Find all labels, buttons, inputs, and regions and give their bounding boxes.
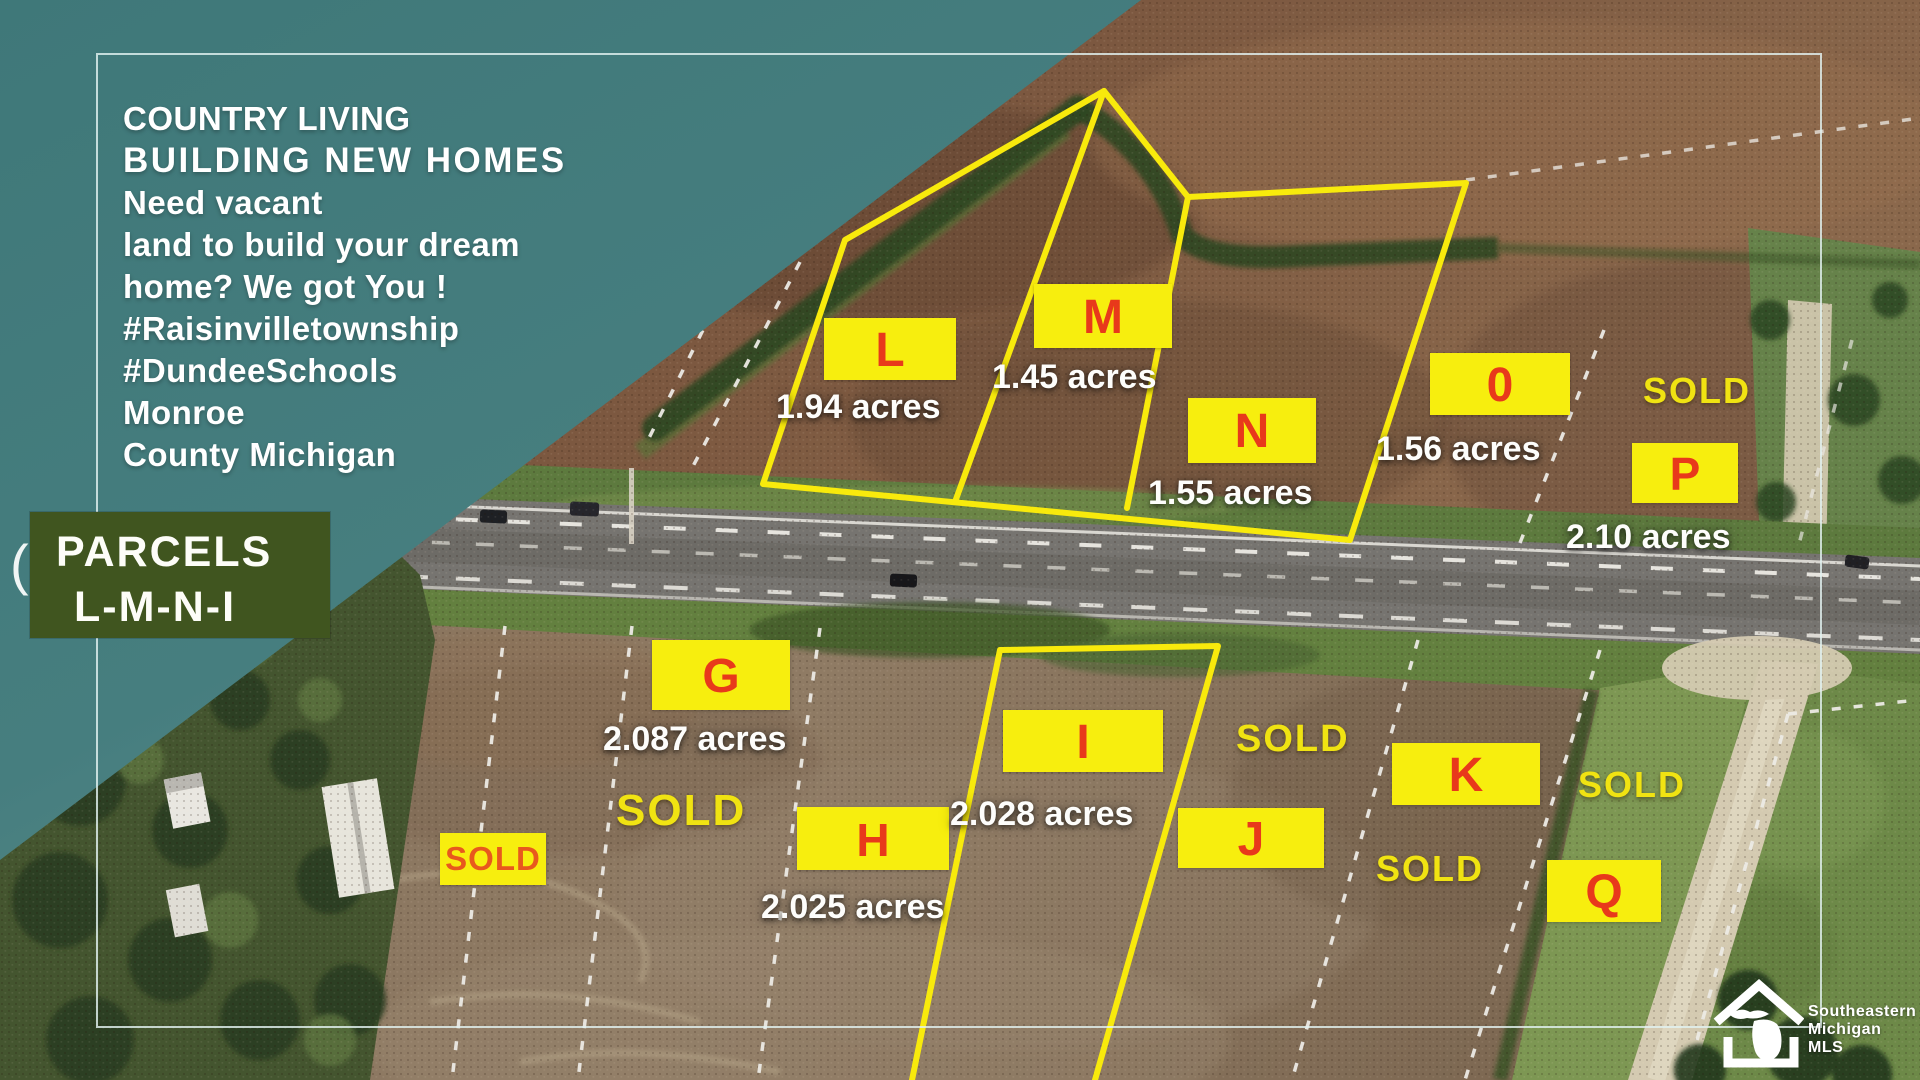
sold-marker: SOLD	[1376, 848, 1484, 890]
parcel-letter: P	[1670, 447, 1701, 501]
sold-marker: SOLD	[1236, 718, 1350, 761]
parcel-letter: M	[1083, 290, 1123, 345]
parcel-label-P: P	[1632, 443, 1738, 503]
house-michigan-icon	[1712, 975, 1804, 1071]
parcel-letter: I	[1076, 715, 1089, 770]
parcel-label-Q: Q	[1547, 860, 1661, 922]
promo-line: County Michigan	[123, 434, 567, 476]
parcel-letter: H	[856, 813, 889, 867]
parcel-label-H: H	[797, 807, 949, 870]
acreage-G: 2.087 acres	[603, 720, 786, 759]
left-edge-glyph: (	[10, 532, 29, 597]
promo-text-block: COUNTRY LIVING BUILDING NEW HOMES Need v…	[123, 98, 567, 476]
parcel-label-M: M	[1034, 284, 1172, 348]
parcel-label-0: 0	[1430, 353, 1570, 415]
parcel-letter: 0	[1487, 358, 1514, 413]
parcel-label-N: N	[1188, 398, 1316, 463]
promo-line: Monroe	[123, 392, 567, 434]
acreage-H: 2.025 acres	[761, 888, 944, 927]
parcel-label-K: K	[1392, 743, 1540, 805]
parcel-label-G: G	[652, 640, 790, 710]
promo-line: COUNTRY LIVING	[123, 98, 567, 140]
acreage-M: 1.45 acres	[992, 358, 1157, 397]
parcel-letter: J	[1238, 812, 1265, 867]
acreage-P: 2.10 acres	[1566, 518, 1731, 557]
parcel-letter: L	[875, 323, 904, 378]
promo-line: Need vacant	[123, 182, 567, 224]
mls-logo: Southeastern Michigan MLS	[1712, 975, 1917, 1075]
acreage-N: 1.55 acres	[1148, 474, 1313, 513]
parcel-letter: G	[702, 649, 739, 704]
promo-line: home? We got You !	[123, 266, 567, 308]
sold-marker: SOLD	[1643, 370, 1751, 412]
promo-hashtag-township: #Raisinvilletownship	[123, 308, 567, 350]
sold-marker-boxed: SOLD	[440, 833, 546, 885]
acreage-0: 1.56 acres	[1376, 430, 1541, 469]
parcel-label-L: L	[824, 318, 956, 380]
promo-line: land to build your dream	[123, 224, 567, 266]
mls-text-line: MLS	[1808, 1039, 1916, 1057]
sold-marker: SOLD	[1578, 764, 1686, 806]
parcel-label-J: J	[1178, 808, 1324, 868]
parcels-banner-subtitle: L-M-N-I	[74, 583, 330, 632]
promo-line: BUILDING NEW HOMES	[123, 140, 567, 182]
promo-hashtag-schools: #DundeeSchools	[123, 350, 567, 392]
parcel-letter: K	[1449, 748, 1484, 803]
parcels-banner: PARCELS L-M-N-I	[30, 512, 330, 638]
parcel-label-I: I	[1003, 710, 1163, 772]
acreage-I: 2.028 acres	[950, 795, 1133, 834]
parcels-banner-title: PARCELS	[56, 528, 330, 577]
sold-marker: SOLD	[616, 786, 746, 836]
listing-graphic: COUNTRY LIVING BUILDING NEW HOMES Need v…	[0, 0, 1920, 1080]
parcel-letter: N	[1235, 404, 1270, 459]
parcel-letter: Q	[1585, 865, 1622, 920]
mls-text-line: Michigan	[1808, 1021, 1916, 1039]
mls-text-line: Southeastern	[1808, 1003, 1916, 1021]
mls-logo-text: Southeastern Michigan MLS	[1808, 1003, 1916, 1057]
acreage-L: 1.94 acres	[776, 388, 941, 427]
